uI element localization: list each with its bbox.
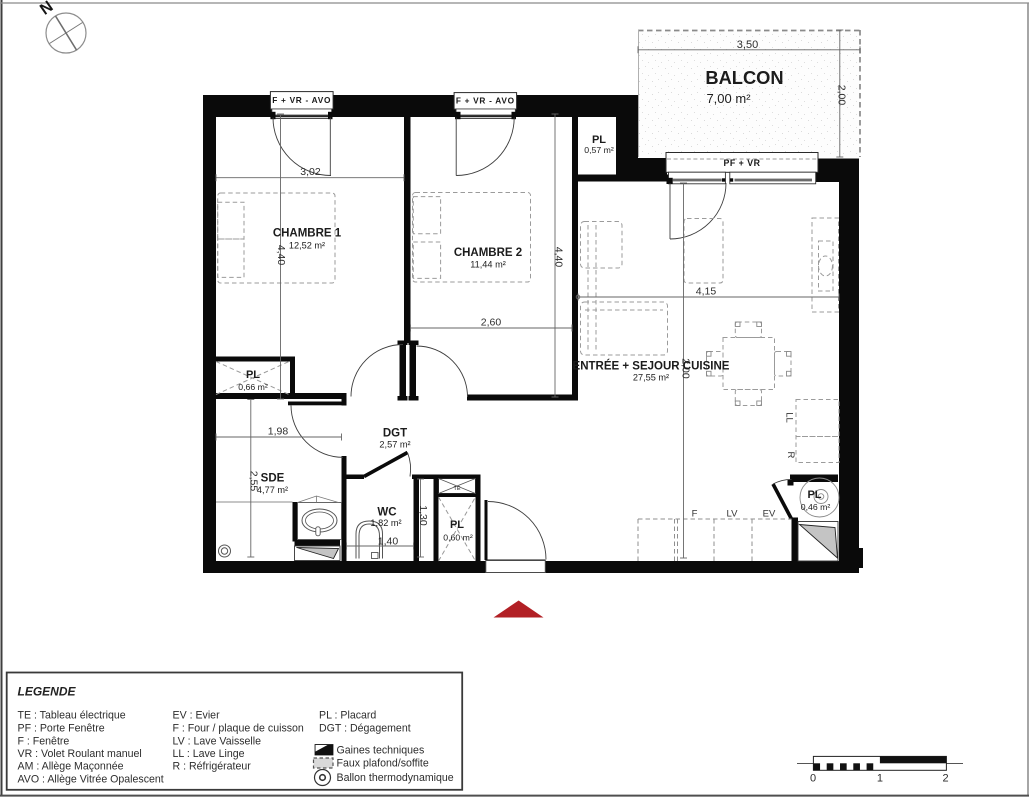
svg-text:4,15: 4,15 — [696, 285, 717, 297]
svg-text:1,82 m²: 1,82 m² — [370, 518, 401, 528]
svg-text:R : Réfrigérateur: R : Réfrigérateur — [173, 760, 252, 772]
svg-text:LV: LV — [727, 509, 739, 520]
svg-text:TE : Tableau électrique: TE : Tableau électrique — [18, 710, 126, 722]
svg-text:PF + VR: PF + VR — [724, 158, 761, 168]
svg-text:1,40: 1,40 — [378, 536, 399, 548]
svg-text:4,40: 4,40 — [275, 245, 287, 266]
svg-text:AM : Allège Maçonnée: AM : Allège Maçonnée — [18, 760, 124, 772]
svg-text:0,46 m²: 0,46 m² — [801, 502, 831, 512]
svg-text:R: R — [785, 452, 796, 459]
svg-text:CHAMBRE 1: CHAMBRE 1 — [273, 227, 342, 239]
svg-text:F + VR - AVO: F + VR - AVO — [456, 96, 515, 106]
svg-text:11,44 m²: 11,44 m² — [470, 260, 506, 270]
svg-text:1,30: 1,30 — [417, 505, 429, 526]
svg-text:F: F — [692, 509, 698, 520]
svg-text:TE: TE — [453, 486, 460, 492]
svg-text:EV : Evier: EV : Evier — [173, 710, 221, 722]
svg-text:LL: LL — [783, 412, 794, 423]
svg-text:PL: PL — [592, 134, 606, 146]
svg-text:7,00 m²: 7,00 m² — [706, 91, 751, 106]
svg-text:Gaines techniques: Gaines techniques — [337, 745, 425, 757]
svg-text:4,77 m²: 4,77 m² — [257, 485, 288, 495]
svg-text:2,00: 2,00 — [836, 85, 848, 106]
svg-text:WC: WC — [377, 507, 396, 519]
svg-text:LL : Lave Linge: LL : Lave Linge — [173, 748, 245, 760]
svg-text:12,52 m²: 12,52 m² — [289, 241, 325, 251]
svg-text:2,57 m²: 2,57 m² — [379, 440, 410, 450]
svg-text:4,40: 4,40 — [552, 247, 564, 268]
svg-text:27,55 m²: 27,55 m² — [633, 373, 669, 383]
svg-text:0,57 m²: 0,57 m² — [584, 145, 614, 155]
svg-text:PL: PL — [807, 489, 821, 501]
svg-text:LV : Lave Vaisselle: LV : Lave Vaisselle — [173, 736, 262, 748]
svg-text:1,98: 1,98 — [268, 425, 289, 437]
svg-text:0: 0 — [810, 773, 816, 785]
svg-text:2,60: 2,60 — [481, 316, 502, 328]
svg-text:1: 1 — [877, 773, 883, 785]
svg-text:DGT : Dégagement: DGT : Dégagement — [319, 723, 411, 735]
svg-text:2: 2 — [942, 773, 948, 785]
svg-text:PL: PL — [450, 519, 464, 531]
svg-text:F + VR - AVO: F + VR - AVO — [272, 95, 331, 105]
svg-text:0,60 m²: 0,60 m² — [443, 533, 473, 543]
svg-text:Faux plafond/soffite: Faux plafond/soffite — [337, 758, 429, 770]
svg-text:0,66 m²: 0,66 m² — [238, 382, 268, 392]
svg-text:PF : Porte Fenêtre: PF : Porte Fenêtre — [18, 723, 105, 735]
svg-text:3,02: 3,02 — [300, 166, 321, 178]
svg-text:CHAMBRE 2: CHAMBRE 2 — [454, 247, 522, 259]
svg-text:EV: EV — [763, 509, 776, 520]
svg-text:PL: PL — [246, 369, 260, 381]
svg-text:LEGENDE: LEGENDE — [18, 685, 77, 699]
svg-text:Ballon thermodynamique: Ballon thermodynamique — [337, 772, 454, 784]
svg-text:BALCON: BALCON — [705, 67, 783, 88]
svg-text:F : Four / plaque de cuisson: F : Four / plaque de cuisson — [173, 723, 304, 735]
svg-text:VR : Volet Roulant manuel: VR : Volet Roulant manuel — [18, 748, 142, 760]
svg-text:DGT: DGT — [383, 427, 407, 439]
svg-text:ENTRÉE + SEJOUR CUISINE: ENTRÉE + SEJOUR CUISINE — [573, 360, 730, 373]
svg-text:PL : Placard: PL : Placard — [319, 710, 376, 722]
svg-text:SDE: SDE — [261, 472, 285, 484]
svg-text:F : Fenêtre: F : Fenêtre — [18, 736, 70, 748]
svg-text:AVO : Allège Vitrée Opalesce: AVO : Allège Vitrée Opalescent — [18, 773, 164, 785]
svg-text:3,50: 3,50 — [737, 39, 758, 51]
